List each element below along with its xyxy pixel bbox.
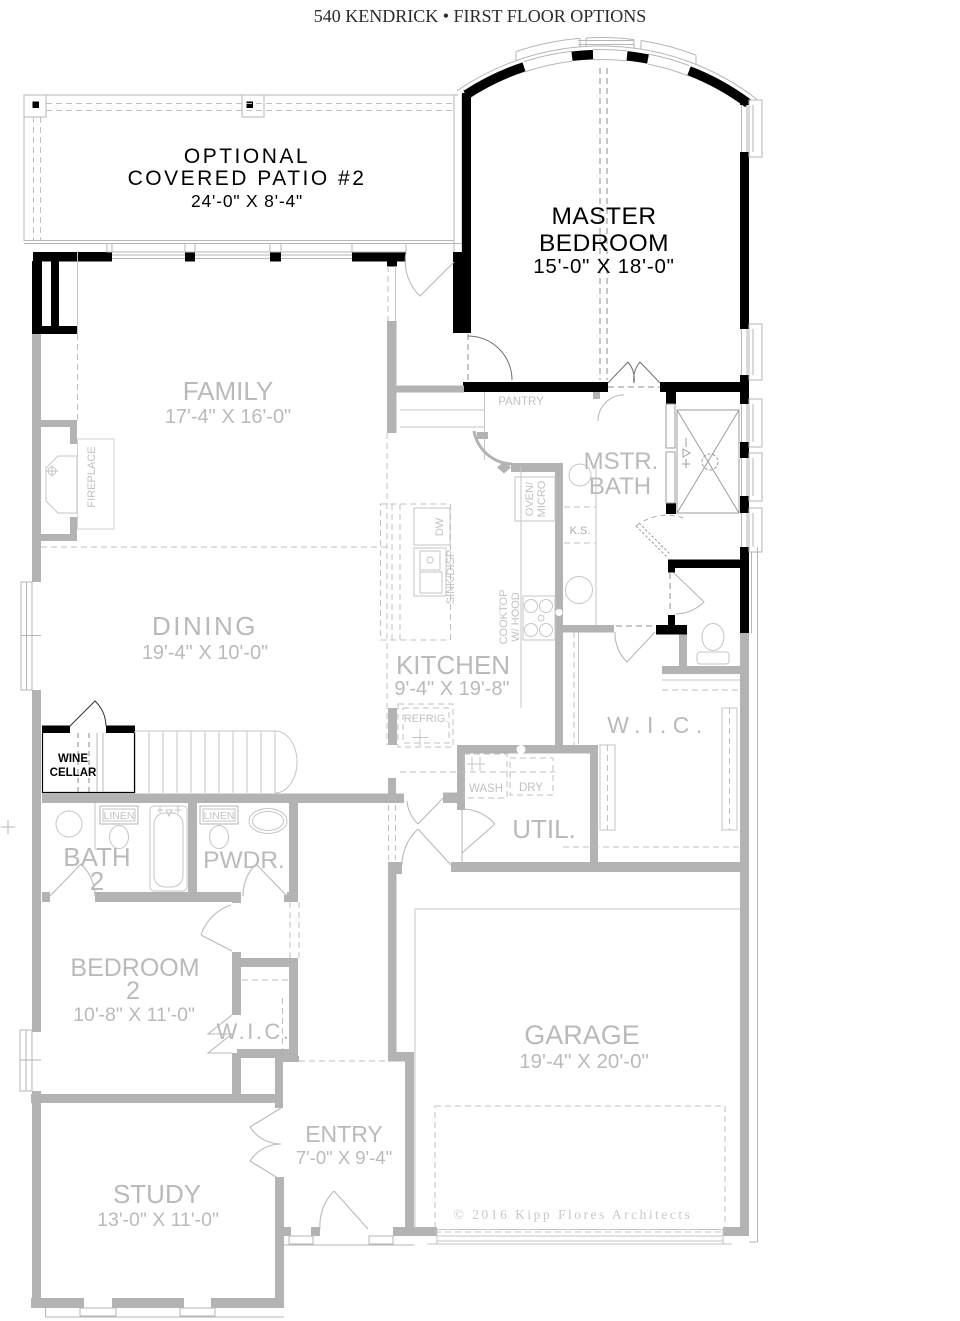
svg-text:REFRIG.: REFRIG. xyxy=(404,713,449,725)
svg-text:7'-0" X 9'-4": 7'-0" X 9'-4" xyxy=(296,1147,392,1168)
svg-text:OVEN/: OVEN/ xyxy=(524,481,536,516)
svg-text:17'-4" X 16'-0": 17'-4" X 16'-0" xyxy=(165,406,291,428)
svg-text:W.I.C.: W.I.C. xyxy=(607,712,709,738)
svg-text:DW: DW xyxy=(434,517,446,536)
svg-text:2: 2 xyxy=(90,866,104,896)
svg-text:2: 2 xyxy=(126,977,140,1005)
svg-text:MICRO: MICRO xyxy=(536,480,548,517)
svg-text:WASH: WASH xyxy=(469,783,503,795)
svg-text:540 KENDRICK • FIRST FLOOR OPT: 540 KENDRICK • FIRST FLOOR OPTIONS xyxy=(314,6,647,26)
svg-text:10'-8" X 11'-0": 10'-8" X 11'-0" xyxy=(73,1004,195,1026)
svg-text:KITCHEN: KITCHEN xyxy=(396,650,510,680)
svg-text:UTIL.: UTIL. xyxy=(512,814,576,844)
svg-text:K.S.: K.S. xyxy=(570,525,591,537)
svg-text:PWDR.: PWDR. xyxy=(203,847,285,874)
svg-text:MSTR.: MSTR. xyxy=(584,448,659,475)
svg-text:FIREPLACE: FIREPLACE xyxy=(86,446,98,507)
svg-text:19'-4" X 20'-0": 19'-4" X 20'-0" xyxy=(519,1050,649,1073)
svg-text:STUDY: STUDY xyxy=(113,1179,201,1209)
svg-text:PANTRY: PANTRY xyxy=(498,396,544,408)
svg-text:DINING: DINING xyxy=(152,611,258,641)
svg-text:SINK/DISP: SINK/DISP xyxy=(445,550,457,604)
svg-text:W.I.C.: W.I.C. xyxy=(217,1019,292,1044)
svg-text:LINEN: LINEN xyxy=(104,810,135,822)
svg-text:COVERED PATIO #2: COVERED PATIO #2 xyxy=(128,167,367,190)
svg-text:© 2016 Kipp Flores Architec: © 2016 Kipp Flores Architects xyxy=(454,1207,693,1222)
svg-text:BEDROOM: BEDROOM xyxy=(539,230,669,257)
svg-text:ENTRY: ENTRY xyxy=(305,1121,383,1147)
svg-text:15'-0" X 18'-0": 15'-0" X 18'-0" xyxy=(533,255,675,278)
svg-text:24'-0" X 8'-4": 24'-0" X 8'-4" xyxy=(191,191,303,211)
svg-text:COOKTOP: COOKTOP xyxy=(498,590,510,645)
svg-text:19'-4" X 10'-0": 19'-4" X 10'-0" xyxy=(142,642,268,664)
svg-text:GARAGE: GARAGE xyxy=(524,1020,640,1050)
svg-text:OPTIONAL: OPTIONAL xyxy=(184,145,310,168)
svg-text:WINE: WINE xyxy=(58,753,88,765)
svg-text:9'-4" X 19'-8": 9'-4" X 19'-8" xyxy=(394,678,509,700)
svg-text:W/ HOOD: W/ HOOD xyxy=(510,592,522,642)
svg-text:13'-0" X 11'-0": 13'-0" X 11'-0" xyxy=(97,1209,219,1231)
svg-text:FAMILY: FAMILY xyxy=(183,376,274,406)
svg-text:DRY: DRY xyxy=(519,782,543,794)
svg-text:BATH: BATH xyxy=(589,473,651,500)
svg-text:MASTER: MASTER xyxy=(551,203,656,230)
svg-text:LINEN: LINEN xyxy=(204,810,235,822)
svg-text:CELLAR: CELLAR xyxy=(50,767,97,779)
